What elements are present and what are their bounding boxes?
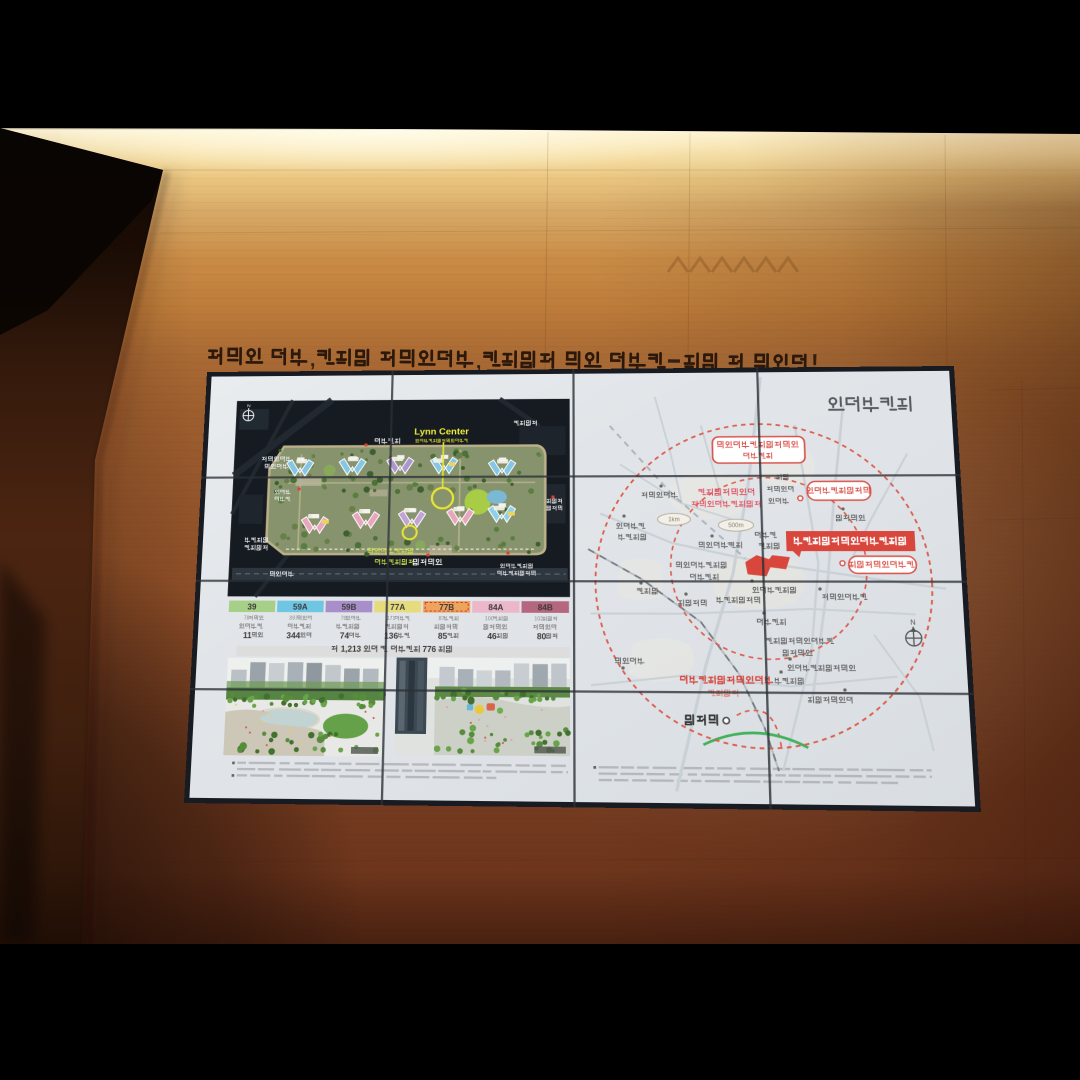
svg-text:78: 78 — [243, 615, 249, 622]
svg-text:102: 102 — [534, 616, 543, 623]
svg-text:78: 78 — [341, 615, 347, 622]
svg-text:85: 85 — [438, 631, 448, 641]
svg-text:100: 100 — [485, 616, 494, 623]
svg-text:1km: 1km — [668, 517, 680, 523]
svg-text:397: 397 — [289, 615, 298, 622]
svg-text:77A: 77A — [390, 602, 406, 612]
svg-text:46: 46 — [487, 631, 496, 641]
svg-text:Lynn Center: Lynn Center — [414, 426, 469, 437]
svg-text:11: 11 — [243, 630, 252, 640]
svg-text:59B: 59B — [341, 602, 356, 612]
svg-text:84A: 84A — [488, 602, 504, 612]
svg-text:171: 171 — [387, 616, 396, 623]
svg-text:59A: 59A — [293, 602, 309, 612]
svg-text:344: 344 — [286, 631, 301, 641]
svg-text:N: N — [247, 403, 251, 408]
svg-text:39: 39 — [247, 602, 256, 612]
svg-text:87: 87 — [439, 616, 445, 623]
svg-text:74: 74 — [340, 631, 350, 641]
svg-text:1,213: 1,213 — [341, 644, 362, 654]
svg-text:77B: 77B — [439, 602, 454, 612]
svg-text:,: , — [310, 349, 316, 371]
svg-text:80: 80 — [537, 631, 546, 641]
svg-text:84B: 84B — [538, 602, 553, 612]
svg-text:N: N — [910, 619, 916, 627]
svg-text:500m: 500m — [728, 523, 744, 530]
svg-text:776: 776 — [422, 644, 436, 654]
